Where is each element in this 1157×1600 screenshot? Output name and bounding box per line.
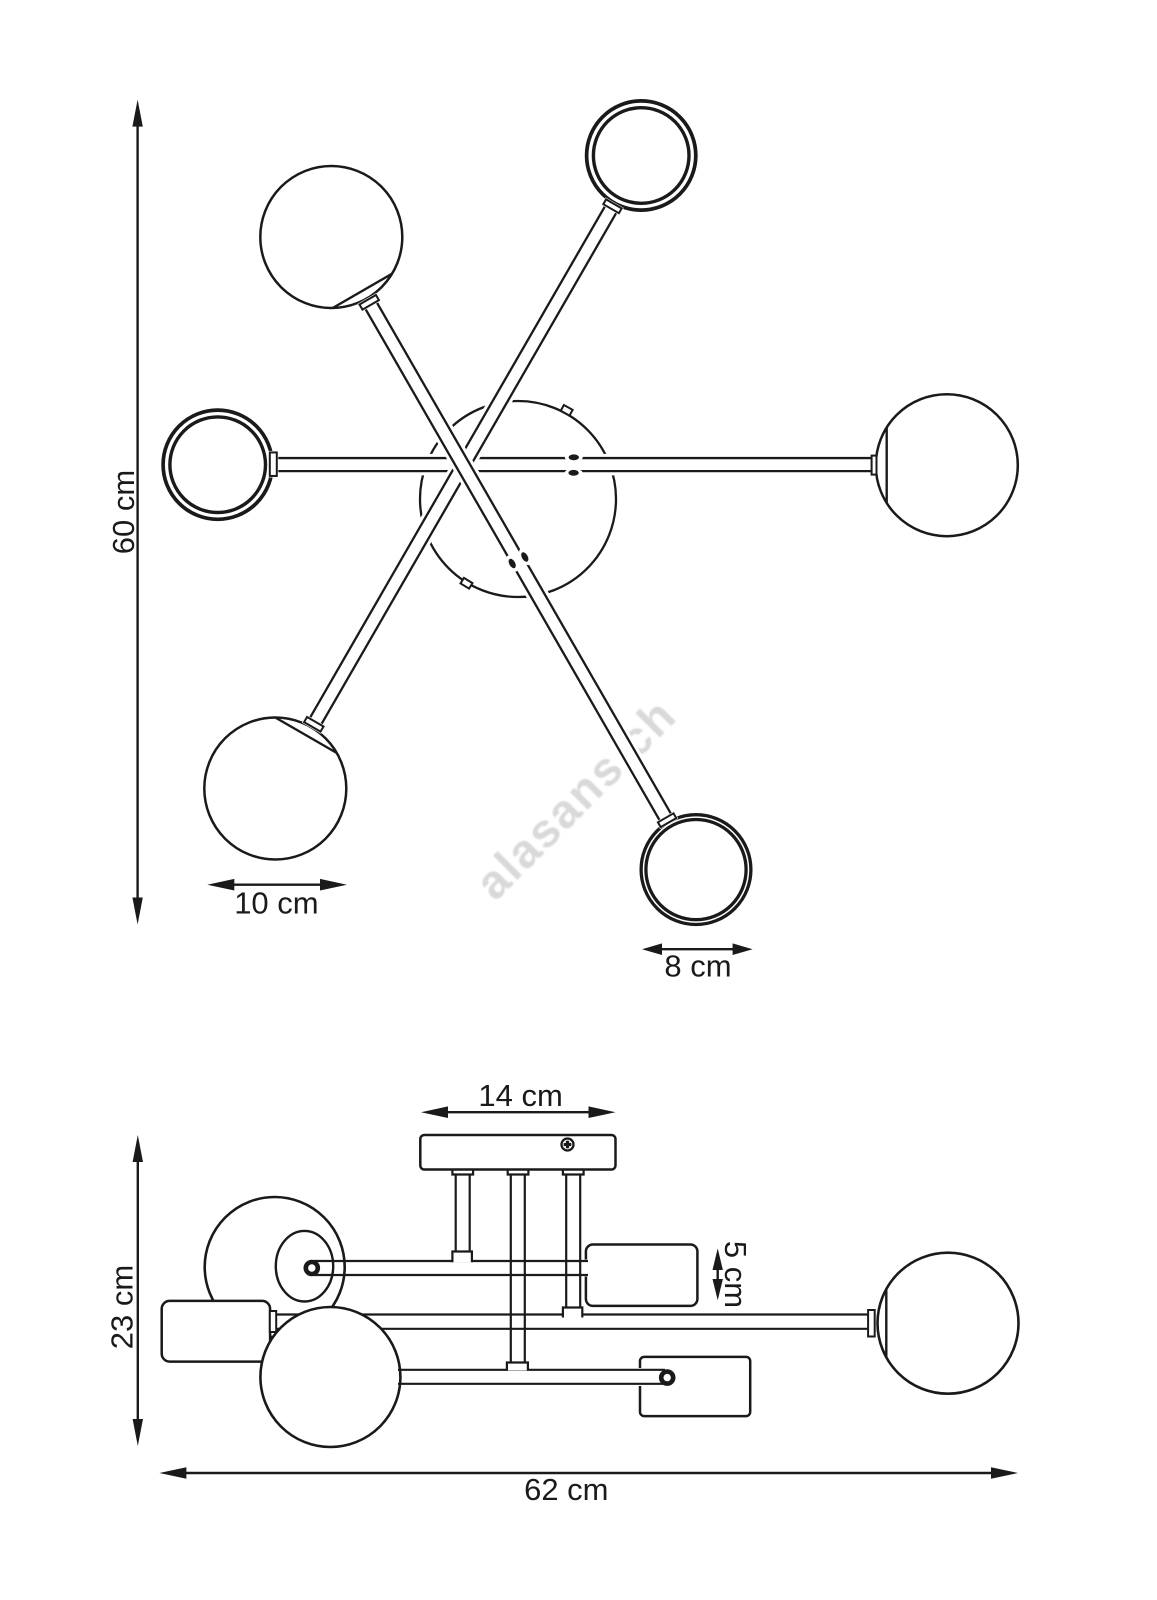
svg-text:23 cm: 23 cm [105, 1265, 140, 1349]
svg-text:5 cm: 5 cm [718, 1241, 753, 1308]
svg-text:8 cm: 8 cm [664, 949, 731, 984]
svg-text:62 cm: 62 cm [524, 1472, 608, 1507]
svg-text:14 cm: 14 cm [478, 1078, 562, 1113]
svg-text:60 cm: 60 cm [106, 470, 141, 554]
svg-text:10 cm: 10 cm [234, 886, 318, 921]
